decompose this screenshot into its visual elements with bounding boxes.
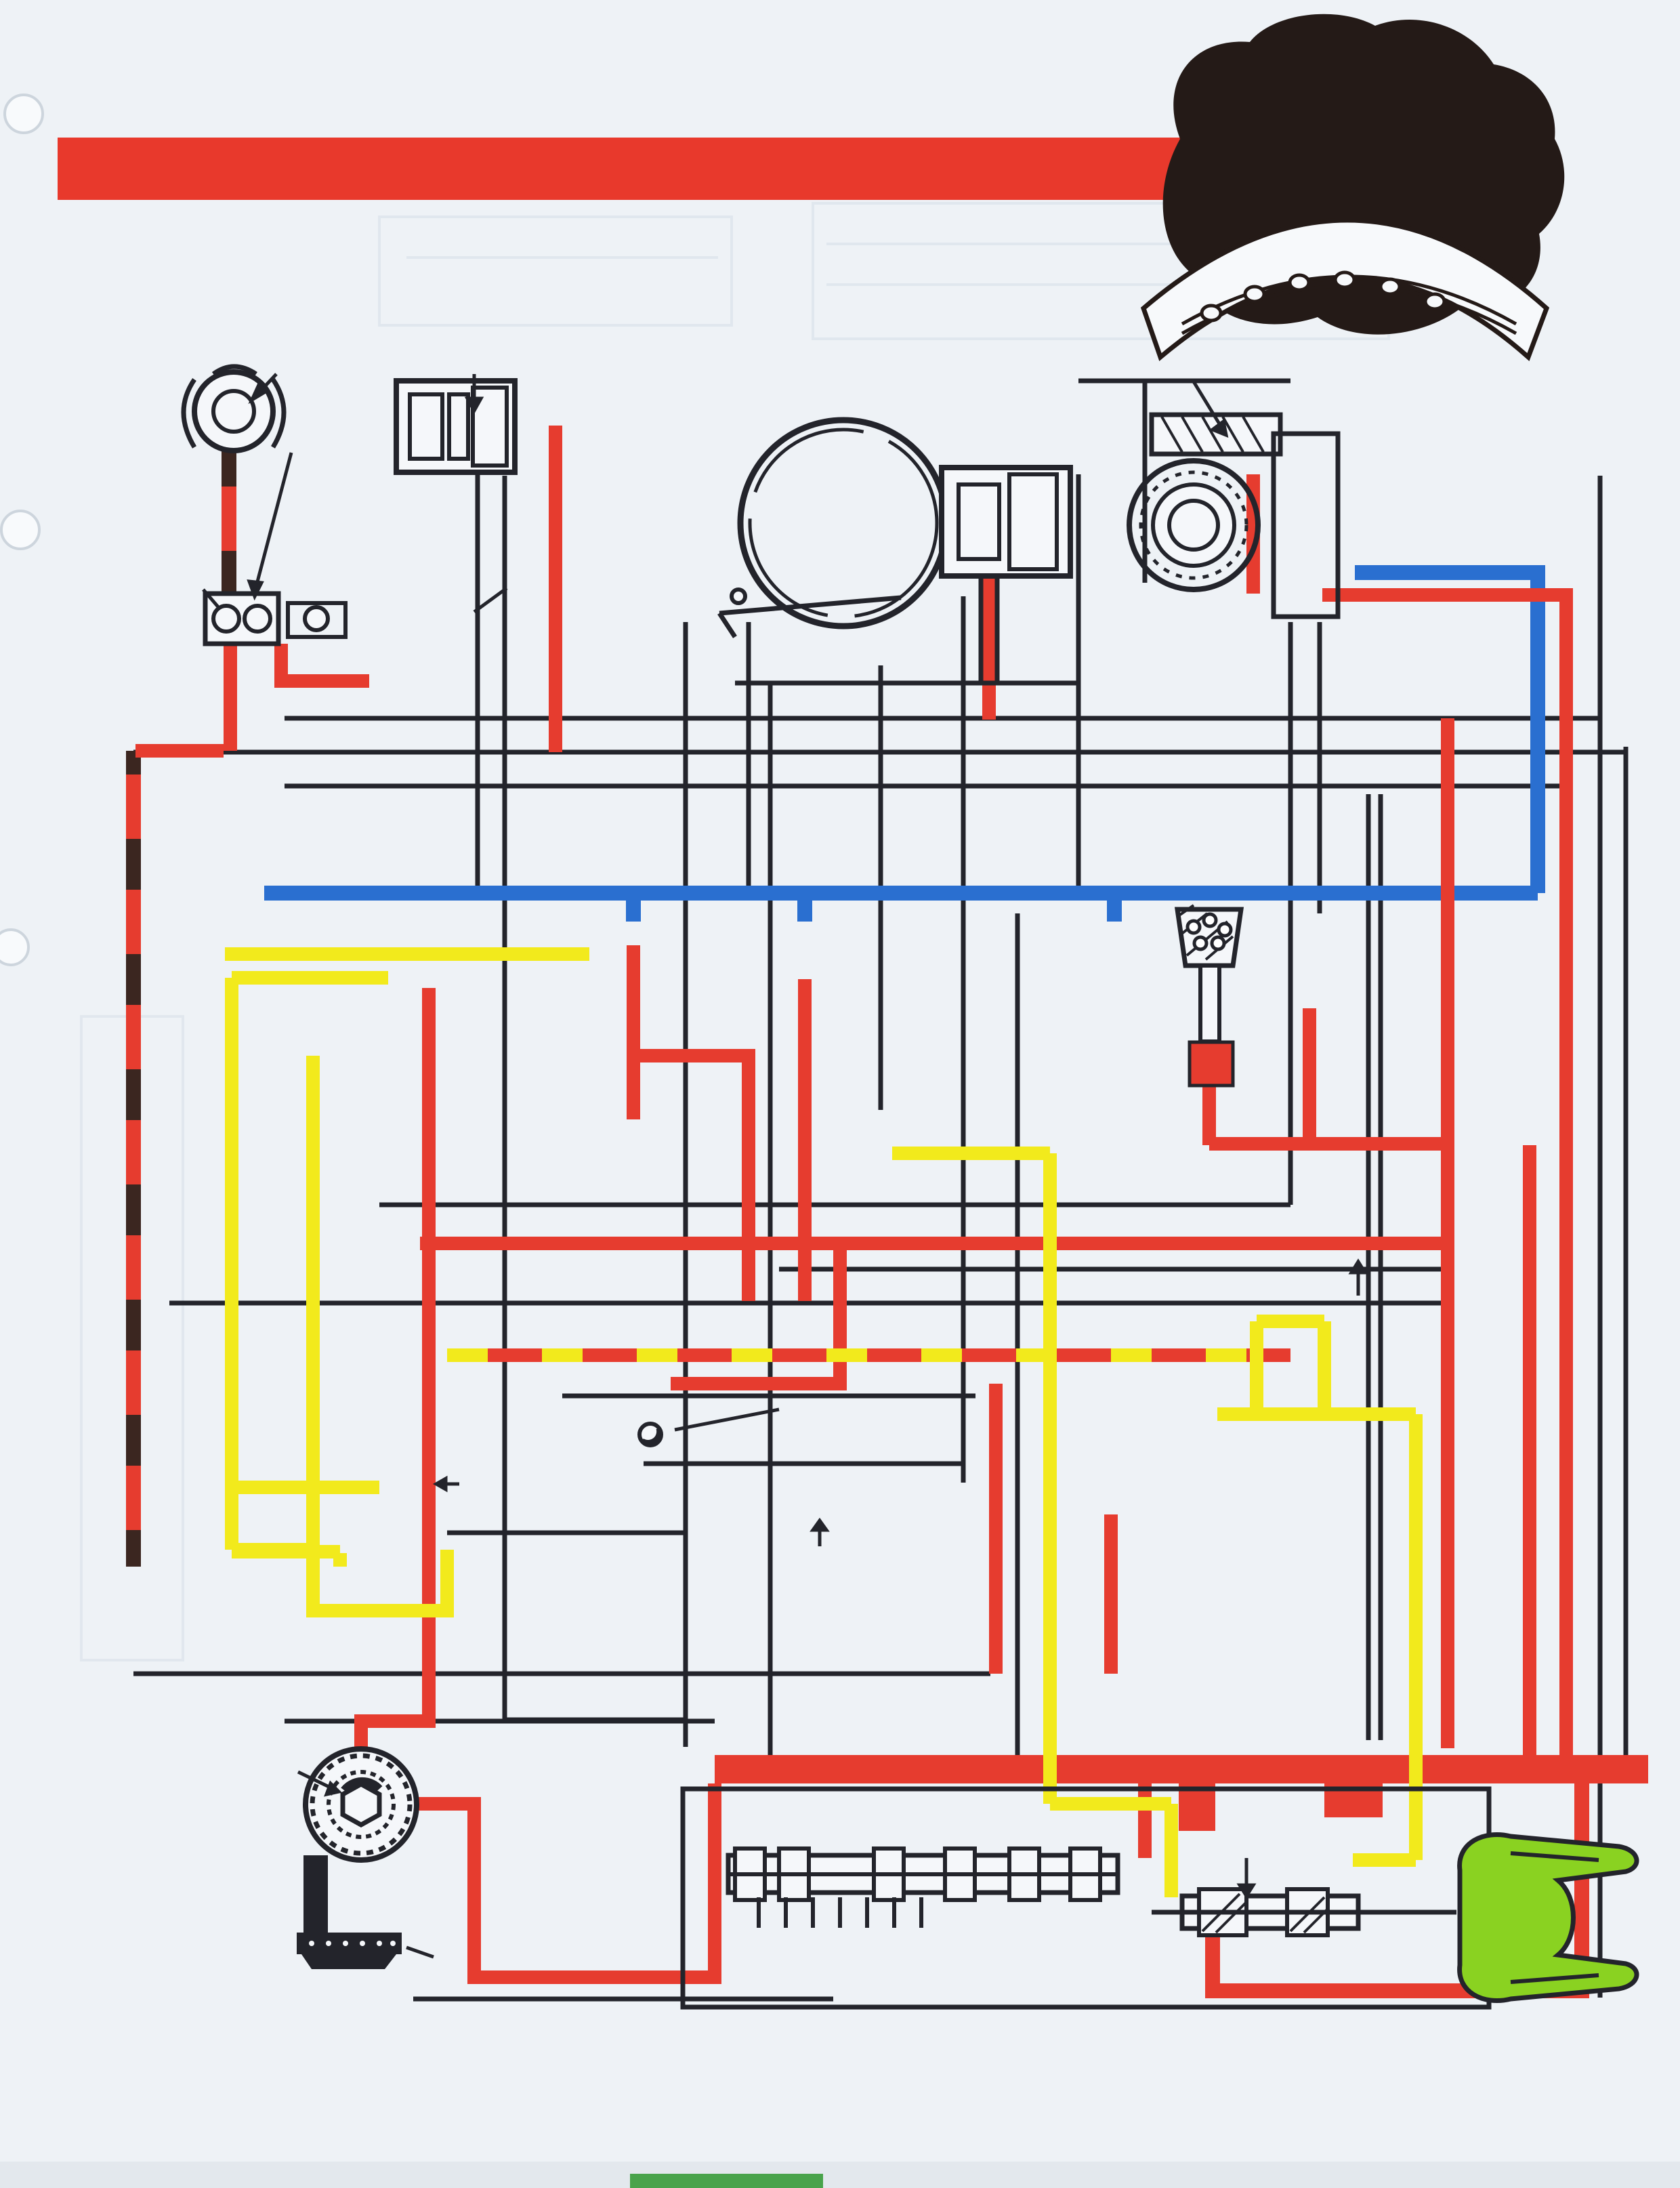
page-bottom-edge [0,2162,1680,2188]
intermediate-servo-accumulator-assembly [1177,905,1241,1041]
governor-pressure-lines [264,573,1538,922]
manual-page [0,0,1680,2188]
shifter-quadrant-emblem [1143,14,1564,357]
low-and-reverse-clutch-assembly [1129,415,1338,617]
title-banner [58,138,1182,200]
control-pressure-solids [474,434,1648,1886]
intermediate-servo-assembly [719,420,1077,684]
forward-clutch-assembly [396,381,515,472]
manual-valve-assembly [683,1789,1489,2007]
cooler-assembly [205,594,278,644]
converter-assembly [184,367,284,451]
pump-inlet-pipe [303,1855,328,1935]
three-two-check-ball [639,1424,661,1445]
drain-back-check-valve [288,603,345,637]
next-page-green-strip [630,2174,823,2188]
pump-assembly [297,1749,417,1969]
binder-hole-punches [0,95,43,965]
throttle-linkage-fork [1460,1834,1637,2000]
